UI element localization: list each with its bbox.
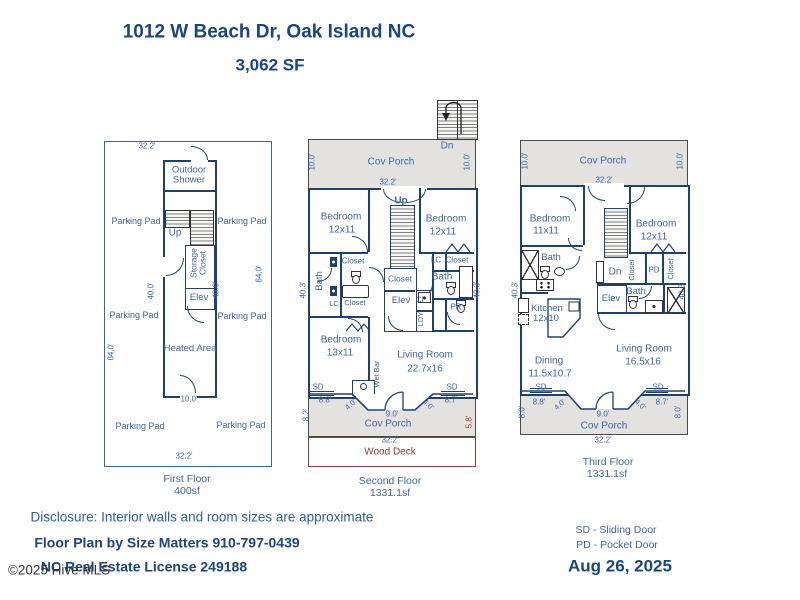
dim-label: 8.2'	[303, 409, 312, 422]
room-size-label: 11x11	[533, 226, 559, 237]
room-label-bath: Bath	[432, 272, 453, 283]
room-size-label: 11.5x10.7	[528, 369, 571, 380]
room-size-label: 12x10	[533, 314, 559, 324]
room-label-wood-deck: Wood Deck	[364, 447, 416, 458]
stove-icon	[536, 279, 554, 291]
dim-label: 8.7'	[445, 397, 458, 406]
wall	[419, 252, 474, 254]
wall	[163, 190, 215, 192]
wall	[432, 330, 474, 332]
floor1-caption: First Floor	[163, 474, 210, 486]
room-size-label: 16.5x16	[625, 357, 661, 368]
page-title-sqft: 3,062 SF	[236, 57, 305, 76]
floor1-area: 400sf	[174, 486, 200, 498]
closet-door-icon	[330, 257, 337, 267]
door-slab-icon	[596, 261, 604, 283]
wall	[432, 298, 474, 300]
copyright-text: ©2025 Hive MLS	[8, 564, 110, 579]
room-label-wet-bar: Wet Bar	[373, 361, 381, 388]
dim-label: 8.7'	[656, 399, 669, 408]
dim-label: 40.0'	[213, 281, 222, 298]
dim-label: 32.2'	[138, 143, 155, 152]
dim-label: 10.0'	[522, 152, 531, 169]
room-size-label: 13x11	[327, 348, 354, 359]
room-label-bedroom: Bedroom	[321, 212, 362, 223]
pocket-door-label: PD	[648, 267, 659, 276]
room-label-bedroom: Bedroom	[321, 335, 362, 346]
dim-label: 10.0'	[677, 152, 686, 169]
floor2-area: 1331.1sf	[370, 488, 410, 500]
bathtub-icon	[459, 266, 473, 298]
room-label-cov-porch: Cov Porch	[365, 419, 412, 430]
vanity-sink-icon	[645, 300, 663, 313]
wall	[368, 188, 370, 252]
dim-label: 8.8'	[533, 399, 546, 408]
room-label-elev: Elev	[602, 294, 620, 304]
shower-icon	[521, 250, 539, 280]
room-label-closet: Closet	[342, 258, 365, 267]
stairs-icon	[390, 205, 415, 269]
dim-label: 8.8'	[319, 397, 332, 406]
dishwasher-icon	[518, 314, 529, 325]
room-label-cov-porch: Cov Porch	[368, 157, 415, 168]
toilet-icon	[447, 286, 455, 295]
room-label-bath: Bath	[541, 253, 561, 263]
room-label-bath: Bath	[315, 271, 325, 291]
dim-label: 8.0'	[519, 406, 528, 419]
dim-label: 40.0'	[148, 282, 157, 299]
bathtub-icon	[342, 285, 369, 298]
date-text: Aug 26, 2025	[568, 558, 672, 577]
stairs-icon	[190, 210, 214, 247]
stairs-up-label: Up	[394, 196, 407, 207]
stairs-icon	[604, 208, 628, 258]
wet-bar-sink-icon	[360, 383, 367, 390]
parking-pad-label: Parking Pad	[216, 421, 265, 431]
room-label-bedroom: Bedroom	[530, 214, 571, 225]
room-label-living-room: Living Room	[397, 350, 453, 361]
wall	[308, 316, 368, 318]
room-label-storage-closet: Storage Closet	[190, 248, 209, 278]
wall	[368, 317, 370, 380]
dim-label: 32.2'	[594, 437, 611, 446]
dim-label: 10.0'	[464, 153, 473, 170]
floor3-area: 1331.1sf	[587, 469, 627, 481]
page-title-address: 1012 W Beach Dr, Oak Island NC	[123, 23, 416, 44]
dim-label: 9.0'	[597, 411, 610, 420]
room-label-elev: Elev	[392, 296, 410, 306]
stairs-up-label: Up	[169, 228, 182, 239]
dim-label: 32.2'	[595, 177, 612, 186]
dim-label: 32.2'	[379, 179, 396, 188]
fridge-icon	[518, 298, 529, 313]
room-label-lc: LC	[431, 257, 441, 266]
closet-door-icon	[330, 286, 337, 296]
room-label-ldy: LDY	[417, 312, 425, 327]
toilet-icon	[352, 275, 360, 284]
dim-label: 32.2'	[381, 437, 398, 446]
stairs-dn-label: Dn	[609, 267, 622, 278]
sliding-door-label: SD	[446, 384, 457, 393]
room-label-cl: CL	[416, 297, 426, 306]
room-label-pr: PR	[450, 304, 461, 313]
sliding-door-label: SD	[312, 384, 323, 393]
dim-label: 32.2'	[175, 453, 192, 462]
toilet-icon	[629, 300, 637, 309]
exterior-stairs-icon	[457, 100, 478, 140]
dim-label: 5.8'	[466, 416, 475, 429]
dim-label: 64.0'	[108, 343, 117, 360]
dim-label: 10.0'	[309, 153, 318, 170]
wall	[384, 290, 415, 292]
parking-pad-label: Parking Pad	[217, 312, 266, 322]
dim-label: 40.3'	[512, 281, 521, 298]
room-label-heated-area: Heated Area	[164, 344, 217, 354]
wall	[629, 252, 686, 254]
parking-pad-label: Parking Pad	[109, 311, 158, 321]
room-label-closet: Closet	[667, 258, 675, 279]
room-label-elev: Elev	[190, 293, 208, 303]
room-size-label: 12x11	[641, 232, 668, 243]
wall	[583, 185, 585, 245]
parking-pad-label: Parking Pad	[115, 422, 164, 432]
legend-sliding-door: SD - Sliding Door	[575, 525, 656, 537]
dim-label: 8.0'	[675, 406, 684, 419]
dim-label: 40.3'	[300, 281, 309, 298]
legend-pocket-door: PD - Pocket Door	[576, 540, 658, 552]
room-label-closet: Closet	[388, 274, 412, 283]
room-label-outdoor-shower: Outdoor Shower	[172, 166, 206, 187]
room-label-dining: Dining	[535, 356, 563, 367]
toilet-icon	[541, 270, 549, 279]
exterior-stairs-icon	[437, 100, 458, 140]
wall	[645, 252, 647, 283]
room-label-cov-porch: Cov Porch	[580, 156, 627, 167]
room-size-label: 12x11	[329, 225, 356, 236]
wall	[520, 292, 548, 294]
room-label-closet: Closet	[344, 299, 365, 307]
dim-label: 10.0'	[180, 396, 197, 405]
room-label-bedroom: Bedroom	[426, 214, 467, 225]
wall	[662, 252, 664, 283]
floor2-caption: Second Floor	[359, 476, 421, 488]
disclosure-text: Disclosure: Interior walls and room size…	[31, 511, 374, 526]
sliding-door-label: SD	[652, 384, 663, 393]
room-size-label: 12x11	[430, 227, 457, 238]
byline-text: Floor Plan by Size Matters 910-797-0439	[34, 535, 299, 550]
parking-pad-label: Parking Pad	[217, 217, 266, 227]
dim-label: 40.3'	[679, 282, 688, 299]
room-label-closet: Closet	[628, 259, 636, 280]
floor-plan-sheet: 1012 W Beach Dr, Oak Island NC 3,062 SF …	[0, 0, 800, 600]
floor3-caption: Third Floor	[583, 457, 634, 469]
stairs-dn-label: Dn	[441, 141, 454, 152]
room-label-lc: LC	[329, 300, 339, 308]
dim-label: 64.0'	[256, 265, 265, 282]
sink-icon	[554, 267, 565, 276]
sliding-door-label: SD	[535, 384, 546, 393]
room-label-bedroom: Bedroom	[636, 219, 677, 230]
wall	[663, 283, 665, 312]
room-label-living-room: Living Room	[616, 344, 672, 355]
wall	[308, 252, 368, 254]
room-label-closet: Closet	[446, 257, 469, 266]
dim-label: 40.3'	[474, 281, 483, 298]
room-label-bath: Bath	[626, 287, 646, 297]
stairs-icon	[165, 210, 190, 228]
room-size-label: 22.7x16	[407, 364, 443, 375]
parking-pad-label: Parking Pad	[111, 217, 160, 227]
room-label-cov-porch: Cov Porch	[581, 421, 628, 432]
